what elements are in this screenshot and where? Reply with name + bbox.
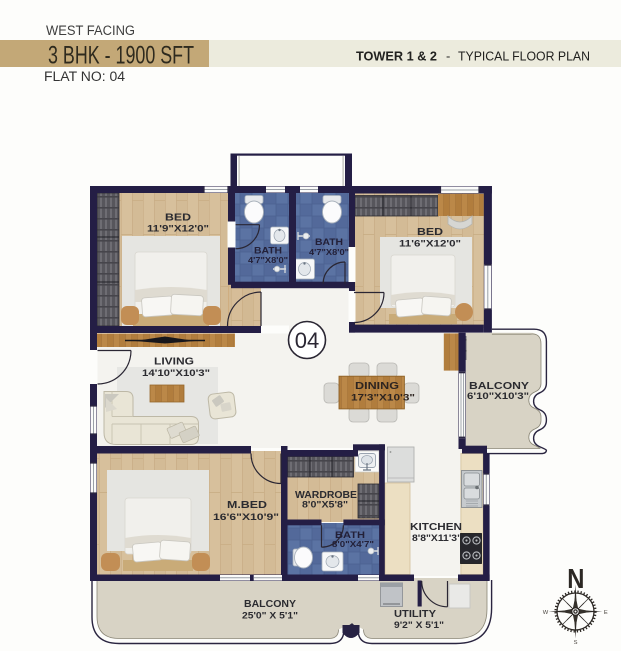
svg-text:8'0"X4'7": 8'0"X4'7" (332, 539, 374, 549)
svg-text:04: 04 (295, 328, 319, 353)
svg-text:FLAT NO: 04: FLAT NO: 04 (44, 69, 126, 84)
svg-text:14'10"X10'3": 14'10"X10'3" (142, 368, 210, 378)
svg-text:W: W (543, 610, 549, 616)
svg-text:11'9"X12'0": 11'9"X12'0" (147, 224, 209, 234)
svg-text:16'6"X10'9": 16'6"X10'9" (213, 512, 279, 522)
svg-text:BED: BED (417, 227, 443, 238)
svg-text:25'0" X 5'1": 25'0" X 5'1" (242, 611, 298, 621)
svg-text:11'6"X12'0": 11'6"X12'0" (399, 239, 461, 249)
svg-text:E: E (604, 610, 608, 616)
svg-text:TYPICAL FLOOR PLAN: TYPICAL FLOOR PLAN (458, 49, 590, 64)
svg-text:8'0"X5'8": 8'0"X5'8" (302, 500, 348, 510)
svg-text:17'3"X10'3": 17'3"X10'3" (351, 393, 415, 403)
svg-text:LIVING: LIVING (154, 357, 194, 368)
svg-text:-: - (446, 49, 450, 64)
svg-text:3 BHK - 1900 SFT: 3 BHK - 1900 SFT (48, 42, 194, 70)
svg-text:DINING: DINING (355, 381, 399, 392)
svg-text:UTILITY: UTILITY (394, 609, 436, 620)
svg-text:TOWER 1 & 2: TOWER 1 & 2 (356, 49, 437, 64)
svg-text:KITCHEN: KITCHEN (410, 522, 462, 533)
svg-text:8'8"X11'3": 8'8"X11'3" (412, 533, 462, 543)
svg-text:6'10"X10'3": 6'10"X10'3" (467, 391, 529, 401)
svg-text:9'2" X 5'1": 9'2" X 5'1" (394, 620, 444, 630)
svg-text:M.BED: M.BED (227, 500, 267, 511)
svg-text:S: S (574, 640, 578, 646)
svg-text:BED: BED (165, 213, 191, 224)
svg-text:4'7"X8'0": 4'7"X8'0" (309, 247, 349, 257)
svg-text:BALCONY: BALCONY (244, 599, 296, 610)
svg-text:WEST FACING: WEST FACING (46, 23, 135, 38)
svg-text:4'7"X8'0": 4'7"X8'0" (248, 255, 288, 265)
